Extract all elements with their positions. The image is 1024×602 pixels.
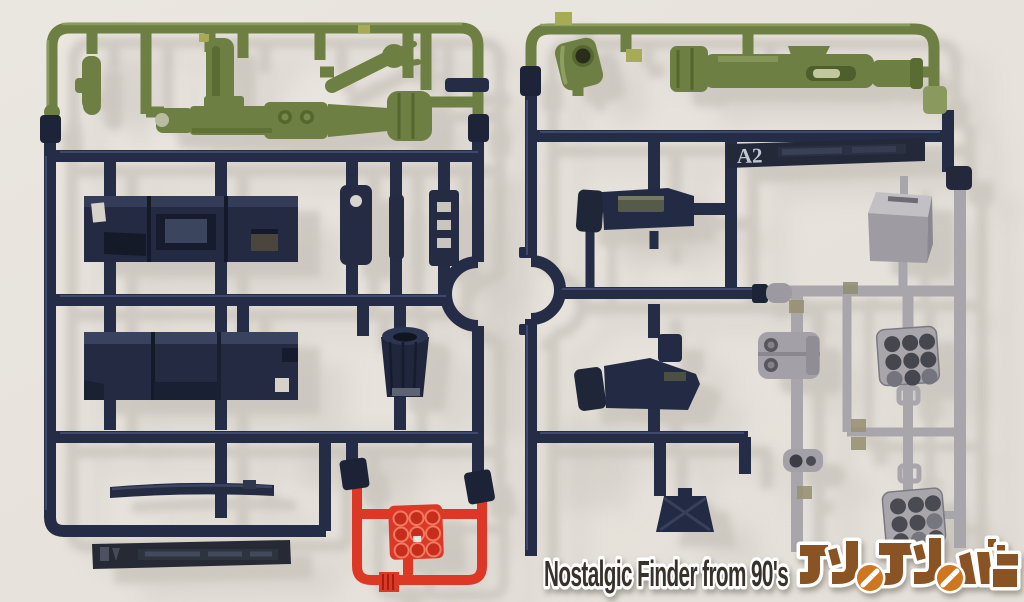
svg-text:Nostalgic Finder from 90's: Nostalgic Finder from 90's (544, 554, 788, 594)
